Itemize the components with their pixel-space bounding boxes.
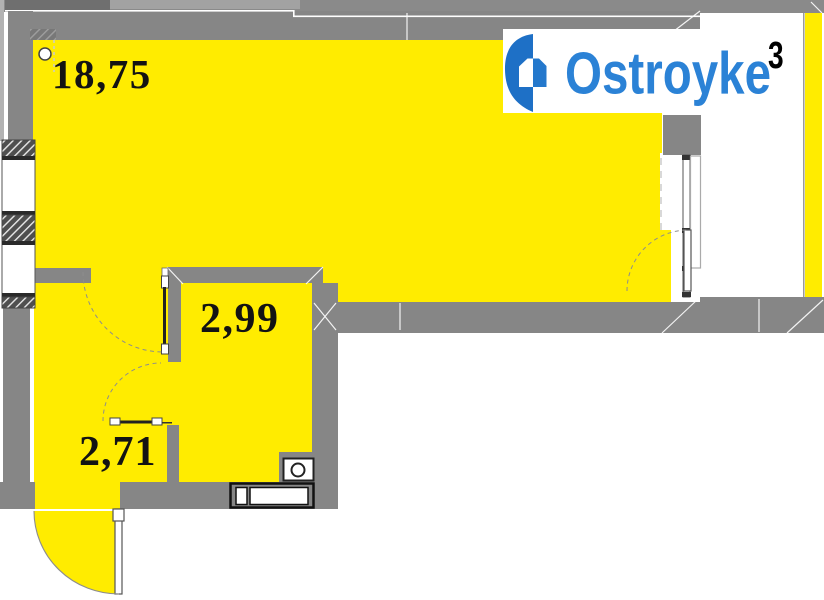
svg-text:Ostroyke: Ostroyke — [565, 41, 771, 107]
svg-text:2,99: 2,99 — [200, 296, 280, 342]
svg-text:18,75: 18,75 — [52, 51, 152, 97]
svg-text:3: 3 — [768, 35, 784, 77]
svg-text:2,71: 2,71 — [79, 429, 157, 475]
